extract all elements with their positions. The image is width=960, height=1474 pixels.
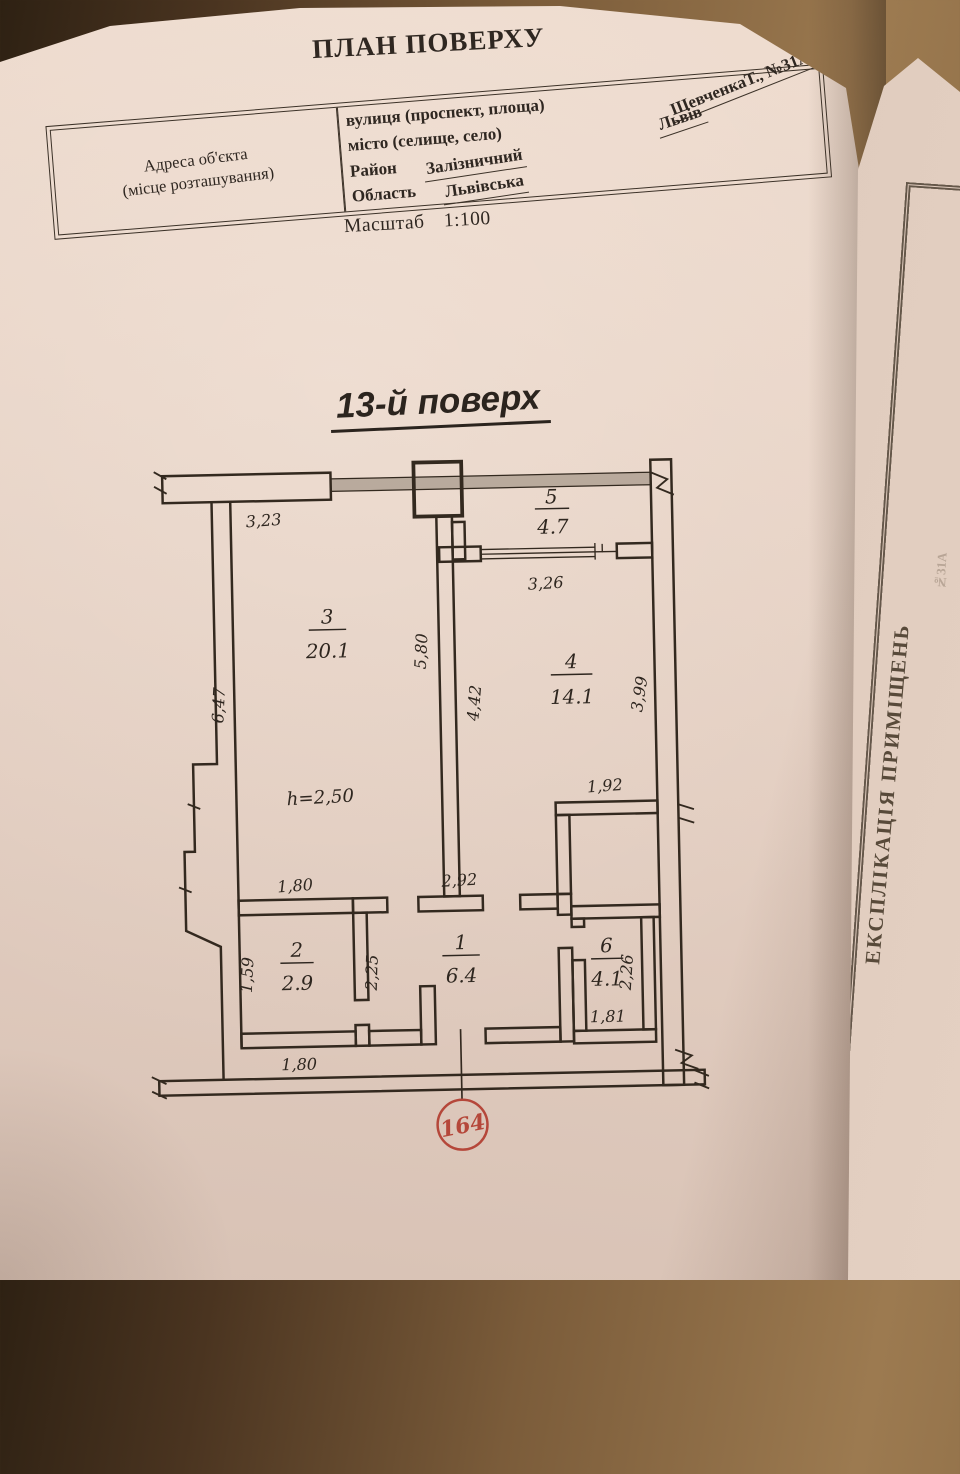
dim-room1-left: 2,25	[362, 954, 382, 991]
floor-plan-drawing: 5 4.7 3 20.1 4 14.1 2 2.9 1 6.4 6 4.1 h=…	[131, 446, 728, 1175]
scale-label: Масштаб	[344, 212, 426, 237]
ceiling-height-label: h=2,50	[286, 786, 354, 811]
room3-number: 3	[321, 605, 334, 628]
dim-room6-bottom: 1,81	[590, 1007, 626, 1027]
balcony-glazing-band	[331, 472, 651, 491]
room2-number: 2	[289, 939, 303, 962]
balcony-window	[481, 543, 617, 562]
scale-value: 1:100	[443, 208, 491, 232]
stamp-number: 164	[438, 1110, 488, 1143]
floor-title: 13-й поверх	[329, 377, 551, 433]
dim-room2-top: 1,80	[277, 875, 314, 897]
room1-number: 1	[454, 931, 467, 954]
room6-number: 6	[600, 934, 613, 957]
dim-room4-niche: 1,92	[586, 775, 623, 797]
room2-area: 2.9	[281, 972, 314, 996]
dim-room6-right: 2,26	[616, 954, 637, 992]
wall-break-symbols	[139, 461, 709, 1100]
room5-number: 5	[545, 485, 558, 508]
room4-number: 4	[564, 650, 578, 673]
region-label: Область	[351, 182, 417, 206]
dim-room4-right: 3,99	[627, 675, 651, 713]
address-table-right-cell: вулиця (проспект, площа) ШевченкаТ., №31…	[339, 69, 827, 211]
dim-room2-bottom: 1,80	[281, 1055, 317, 1075]
dim-balcony-window: 3,26	[527, 573, 564, 594]
room1-area: 6.4	[446, 964, 478, 988]
room4-area: 14.1	[550, 685, 594, 709]
dim-room3-left: 6,47	[208, 686, 229, 723]
dim-room4-left: 4,42	[463, 684, 485, 722]
address-table-left-cell: Адреса об'єкта (місце розташування)	[49, 102, 345, 240]
dim-room3-right: 5,80	[411, 633, 432, 670]
floor-plan: 5 4.7 3 20.1 4 14.1 2 2.9 1 6.4 6 4.1 h=…	[131, 446, 728, 1180]
district-label: Район	[349, 158, 397, 181]
page-title: ПЛАН ПОВЕРХУ	[311, 22, 545, 65]
dim-top: 3,23	[245, 510, 282, 532]
room5-area: 4.7	[536, 515, 569, 539]
dim-room2-left: 1,59	[237, 957, 258, 994]
dim-room1-top: 2,92	[440, 870, 478, 891]
document-page: ПЛАН ПОВЕРХУ Адреса об'єкта (місце розта…	[0, 0, 960, 1280]
room3-area: 20.1	[305, 639, 350, 663]
